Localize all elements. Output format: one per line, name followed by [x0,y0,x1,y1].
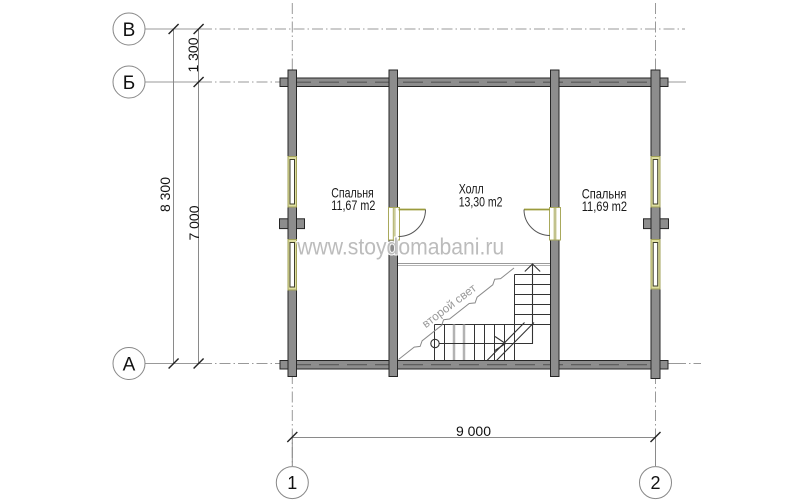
svg-text:1: 1 [287,473,297,493]
svg-text:В: В [123,20,136,41]
svg-text:11,69 m2: 11,69 m2 [582,198,628,214]
svg-text:второй свет: второй свет [419,280,479,330]
svg-text:Б: Б [123,73,135,94]
svg-text:8 300: 8 300 [157,177,173,212]
svg-text:11,67 m2: 11,67 m2 [331,197,375,213]
svg-text:13,30 m2: 13,30 m2 [459,194,503,210]
svg-text:1 300: 1 300 [185,37,201,72]
svg-text:9 000: 9 000 [456,423,491,439]
svg-text:7 000: 7 000 [186,205,202,240]
svg-text:А: А [123,354,136,375]
svg-text:2: 2 [650,473,660,493]
svg-text:www.stoydomabani.ru: www.stoydomabani.ru [296,234,504,260]
